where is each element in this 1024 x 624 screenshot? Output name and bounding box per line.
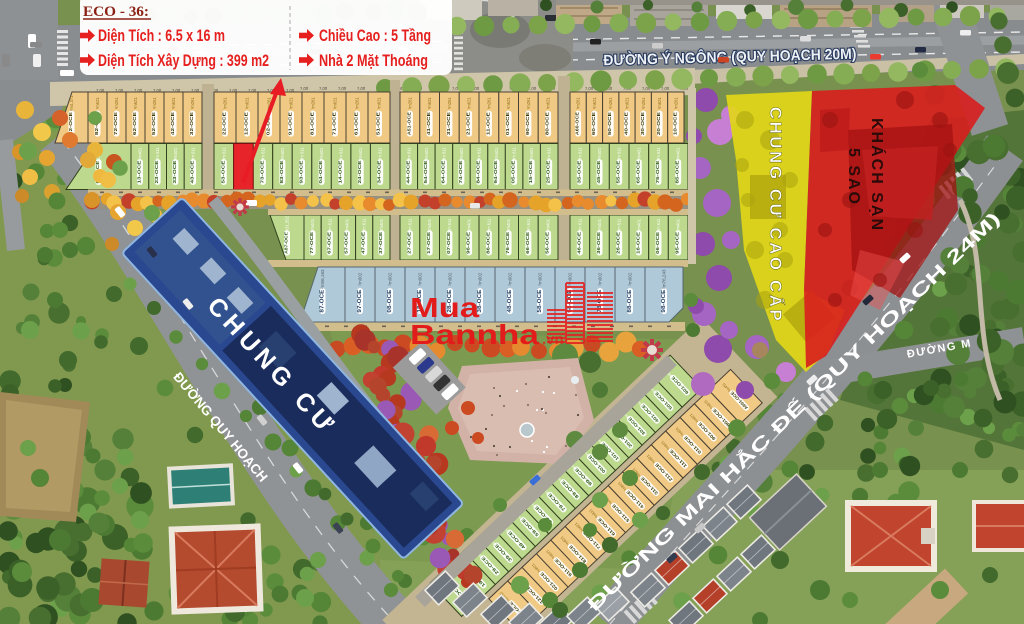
svg-text:²m621: ²m621 <box>625 97 630 110</box>
svg-text:²m621: ²m621 <box>133 97 138 110</box>
svg-text:93-OCE: 93-OCE <box>299 159 305 183</box>
svg-text:7,00: 7,00 <box>338 86 347 91</box>
svg-text:²m76,243: ²m76,243 <box>662 269 667 289</box>
svg-text:²m002: ²m002 <box>358 272 363 285</box>
svg-text:A51-OCE: A51-OCE <box>406 111 412 135</box>
svg-text:²m002: ²m002 <box>478 272 483 285</box>
svg-text:Nhà 2 Mặt Thoáng: Nhà 2 Mặt Thoáng <box>319 52 428 70</box>
svg-text:²m261: ²m261 <box>447 97 452 110</box>
svg-text:62-OCE: 62-OCE <box>132 111 138 135</box>
svg-text:53-OCE: 53-OCE <box>220 159 226 183</box>
svg-text:²m002: ²m002 <box>538 272 543 285</box>
svg-text:33-OCE: 33-OCE <box>172 159 178 183</box>
svg-text:²m 611: ²m 611 <box>617 218 622 231</box>
svg-text:01-OCE: 01-OCE <box>505 111 511 135</box>
svg-text:17-OCE: 17-OCE <box>426 231 432 254</box>
svg-text:67-OCE: 67-OCE <box>326 231 332 254</box>
svg-text:²m401: ²m401 <box>506 218 511 231</box>
svg-text:²m 611: ²m 611 <box>526 218 531 231</box>
svg-text:²m002: ²m002 <box>628 272 633 285</box>
svg-text:²m 611: ²m 611 <box>191 147 196 160</box>
svg-text:91-OCE: 91-OCE <box>288 111 294 135</box>
svg-text:35-OCE: 35-OCE <box>576 159 582 183</box>
svg-text:12-OCE: 12-OCE <box>244 111 250 135</box>
svg-text:95-OCE: 95-OCE <box>675 231 681 254</box>
svg-text:²m261: ²m261 <box>355 97 360 110</box>
svg-text:²m261: ²m261 <box>223 97 228 110</box>
svg-text:²m401: ²m401 <box>636 218 641 231</box>
svg-text:55-OCE: 55-OCE <box>616 159 622 183</box>
svg-text:5 SAO: 5 SAO <box>845 148 862 206</box>
svg-text:²m261: ²m261 <box>486 97 491 110</box>
svg-text:²m621: ²m621 <box>592 97 597 110</box>
svg-text:²m 611: ²m 611 <box>260 147 265 160</box>
svg-text:²m401: ²m401 <box>636 147 641 160</box>
svg-text:04-OCE: 04-OCE <box>318 159 324 183</box>
svg-text:44-OCE: 44-OCE <box>405 159 411 183</box>
svg-text:²m401: ²m401 <box>173 147 178 160</box>
svg-text:²m 611: ²m 611 <box>221 147 226 160</box>
svg-text:²m002: ²m002 <box>448 272 453 285</box>
svg-text:²m621: ²m621 <box>171 97 176 110</box>
svg-text:Diện Tích Xây Dựng : 399 m2: Diện Tích Xây Dựng : 399 m2 <box>98 52 269 70</box>
svg-text:²m621: ²m621 <box>377 97 382 110</box>
svg-text:90-OCE: 90-OCE <box>525 111 531 135</box>
svg-text:²m401: ²m401 <box>310 218 315 231</box>
svg-text:48-OCE: 48-OCE <box>507 289 513 313</box>
svg-text:²m56,163: ²m56,163 <box>320 269 325 289</box>
svg-text:²m401: ²m401 <box>424 147 429 160</box>
svg-text:58-OCE: 58-OCE <box>537 289 543 313</box>
svg-text:40-OCE: 40-OCE <box>624 111 630 135</box>
svg-text:66-OCE: 66-OCE <box>525 231 531 254</box>
svg-text:42-OCE: 42-OCE <box>170 111 176 135</box>
svg-text:45-OCE: 45-OCE <box>596 159 602 183</box>
svg-text:61-OCE: 61-OCE <box>354 111 360 135</box>
svg-text:²m 611: ²m 611 <box>406 147 411 160</box>
svg-text:Bannha: Bannha <box>410 319 540 350</box>
svg-text:16-OCE: 16-OCE <box>635 231 641 254</box>
svg-text:23-OCE: 23-OCE <box>154 159 160 183</box>
svg-text:34-OCE: 34-OCE <box>377 159 383 183</box>
svg-text:²m401: ²m401 <box>467 218 472 231</box>
svg-text:27-OCE: 27-OCE <box>406 231 412 254</box>
svg-text:08-OCE: 08-OCE <box>387 289 393 313</box>
svg-text:07-OCE: 07-OCE <box>446 231 452 254</box>
svg-text:15-OCE: 15-OCE <box>528 159 534 183</box>
svg-text:74-OCE: 74-OCE <box>458 159 464 183</box>
svg-text:52-OCE: 52-OCE <box>151 111 157 135</box>
svg-text:7,00: 7,00 <box>661 86 670 91</box>
svg-text:²m 611: ²m 611 <box>656 218 661 231</box>
svg-text:81-OCE: 81-OCE <box>310 111 316 135</box>
svg-text:65-OCE: 65-OCE <box>635 159 641 183</box>
svg-text:26-OCE: 26-OCE <box>616 231 622 254</box>
svg-text:²m 611: ²m 611 <box>617 147 622 160</box>
svg-text:57-OCE: 57-OCE <box>344 231 350 254</box>
svg-text:²m401: ²m401 <box>358 147 363 160</box>
svg-text:7,00: 7,00 <box>319 86 328 91</box>
svg-text:²m 611: ²m 611 <box>378 147 383 160</box>
svg-text:10-OCE: 10-OCE <box>672 111 678 135</box>
svg-text:60-OCE: 60-OCE <box>591 111 597 135</box>
svg-text:²m 611: ²m 611 <box>441 147 446 160</box>
svg-text:²m401: ²m401 <box>676 147 681 160</box>
svg-text:²m261: ²m261 <box>114 97 119 110</box>
svg-text:7,00: 7,00 <box>357 86 366 91</box>
svg-text:72-OCE: 72-OCE <box>113 111 119 135</box>
svg-text:94-OCE: 94-OCE <box>493 159 499 183</box>
svg-text:98-OCE: 98-OCE <box>661 289 667 313</box>
svg-text:²m261: ²m261 <box>152 97 157 110</box>
svg-text:²m 611: ²m 611 <box>577 147 582 160</box>
svg-text:A60-OCE: A60-OCE <box>575 111 581 135</box>
svg-text:²m621: ²m621 <box>427 97 432 110</box>
svg-text:25-OCE: 25-OCE <box>546 159 552 183</box>
svg-text:²m002: ²m002 <box>388 272 393 285</box>
svg-text:²m401: ²m401 <box>319 147 324 160</box>
svg-text:Diện Tích : 6.5 x 16 m: Diện Tích : 6.5 x 16 m <box>98 27 225 45</box>
svg-text:75-OCE: 75-OCE <box>655 159 661 183</box>
svg-text:68-OCE: 68-OCE <box>567 289 573 313</box>
svg-text:21-OCE: 21-OCE <box>466 111 472 135</box>
svg-text:²m31,552: ²m31,552 <box>285 215 290 233</box>
svg-text:22-OCE: 22-OCE <box>222 111 228 135</box>
svg-text:71-OCE: 71-OCE <box>332 111 338 135</box>
svg-text:73-OCE: 73-OCE <box>259 159 265 183</box>
svg-text:46-OCE: 46-OCE <box>576 231 582 254</box>
svg-text:²m002: ²m002 <box>598 272 603 285</box>
svg-text:54-OCE: 54-OCE <box>423 159 429 183</box>
svg-text:88-OCE: 88-OCE <box>627 289 633 313</box>
svg-text:²m 611: ²m 611 <box>477 147 482 160</box>
svg-text:²m621: ²m621 <box>289 97 294 110</box>
svg-text:²m401: ²m401 <box>597 147 602 160</box>
svg-text:31-OCE: 31-OCE <box>446 111 452 135</box>
svg-text:²m401: ²m401 <box>529 147 534 160</box>
svg-text:²m621: ²m621 <box>657 97 662 110</box>
svg-text:11-OCE: 11-OCE <box>485 111 491 135</box>
svg-text:²m261: ²m261 <box>641 97 646 110</box>
svg-text:²m 611: ²m 611 <box>547 147 552 160</box>
svg-text:CHUNG CƯ CAO CẤP: CHUNG CƯ CAO CẤP <box>766 107 785 324</box>
svg-text:²m401: ²m401 <box>546 218 551 231</box>
svg-text:13-OCE: 13-OCE <box>136 159 142 183</box>
svg-text:ECO - 36:: ECO - 36: <box>83 4 149 20</box>
svg-text:²m621: ²m621 <box>506 97 511 110</box>
svg-text:²m621: ²m621 <box>95 97 100 110</box>
svg-text:²m401: ²m401 <box>494 147 499 160</box>
svg-text:²m 611: ²m 611 <box>327 218 332 231</box>
svg-text:.vn: .vn <box>542 331 564 348</box>
svg-text:²m401: ²m401 <box>427 218 432 231</box>
svg-text:32-OCE: 32-OCE <box>189 111 195 135</box>
svg-text:²m 611: ²m 611 <box>447 218 452 231</box>
svg-text:KHÁCH SẠN: KHÁCH SẠN <box>868 118 887 232</box>
svg-text:47-OCE: 47-OCE <box>361 231 367 254</box>
svg-text:92-OCE: 92-OCE <box>68 111 74 135</box>
svg-text:85-OCE: 85-OCE <box>675 159 681 183</box>
svg-text:24-OCE: 24-OCE <box>357 159 363 183</box>
svg-text:²m002: ²m002 <box>508 272 513 285</box>
svg-text:²m261: ²m261 <box>576 97 581 110</box>
svg-text:²m621: ²m621 <box>245 97 250 110</box>
svg-text:43-OCE: 43-OCE <box>190 159 196 183</box>
svg-text:²m401: ²m401 <box>459 147 464 160</box>
svg-text:97-OCE: 97-OCE <box>357 289 363 313</box>
svg-text:²m261: ²m261 <box>407 97 412 110</box>
svg-text:06-OCE: 06-OCE <box>655 231 661 254</box>
svg-text:²m401: ²m401 <box>345 218 350 231</box>
svg-text:30-OCE: 30-OCE <box>640 111 646 135</box>
svg-text:36-OCE: 36-OCE <box>596 231 602 254</box>
svg-text:²m 611: ²m 611 <box>155 147 160 160</box>
svg-text:²m261: ²m261 <box>608 97 613 110</box>
svg-text:²m261: ²m261 <box>526 97 531 110</box>
svg-text:²m621: ²m621 <box>467 97 472 110</box>
svg-text:²m401: ²m401 <box>137 147 142 160</box>
svg-text:87-OCE: 87-OCE <box>320 289 326 313</box>
svg-text:²m401: ²m401 <box>280 147 285 160</box>
svg-text:²m261: ²m261 <box>673 97 678 110</box>
svg-text:80-OCE: 80-OCE <box>545 111 551 135</box>
svg-text:50-OCE: 50-OCE <box>607 111 613 135</box>
svg-text:7,00: 7,00 <box>300 86 309 91</box>
svg-text:Chiều Cao : 5 Tầng: Chiều Cao : 5 Tầng <box>319 27 431 45</box>
svg-text:²m 611: ²m 611 <box>486 218 491 231</box>
svg-text:84-OCE: 84-OCE <box>476 159 482 183</box>
svg-text:²m401: ²m401 <box>676 218 681 231</box>
svg-text:²m 611: ²m 611 <box>656 147 661 160</box>
svg-text:²m 611: ²m 611 <box>362 218 367 231</box>
svg-text:²m 611: ²m 611 <box>577 218 582 231</box>
svg-text:51-OCE: 51-OCE <box>376 111 382 135</box>
svg-text:76-OCE: 76-OCE <box>505 231 511 254</box>
svg-text:²m261: ²m261 <box>311 97 316 110</box>
svg-text:37-OCE: 37-OCE <box>378 231 384 254</box>
svg-text:83-OCE: 83-OCE <box>279 159 285 183</box>
svg-text:²m401: ²m401 <box>379 218 384 231</box>
svg-text:77-OCE: 77-OCE <box>309 231 315 254</box>
svg-text:²m 611: ²m 611 <box>300 147 305 160</box>
svg-text:20-OCE: 20-OCE <box>656 111 662 135</box>
svg-text:²m261: ²m261 <box>190 97 195 110</box>
svg-text:²m4,371: ²m4,371 <box>69 95 74 111</box>
svg-text:²m 611: ²m 611 <box>407 218 412 231</box>
svg-text:²m 611: ²m 611 <box>339 147 344 160</box>
svg-text:64-OCE: 64-OCE <box>440 159 446 183</box>
svg-text:²m 611: ²m 611 <box>512 147 517 160</box>
svg-text:56-OCE: 56-OCE <box>545 231 551 254</box>
svg-text:²m621: ²m621 <box>546 97 551 110</box>
svg-text:05-OCE: 05-OCE <box>511 159 517 183</box>
svg-text:14-OCE: 14-OCE <box>338 159 344 183</box>
svg-text:41-OCE: 41-OCE <box>426 111 432 135</box>
svg-text:²m401: ²m401 <box>597 218 602 231</box>
svg-text:²m621: ²m621 <box>333 97 338 110</box>
svg-text:86-OCE: 86-OCE <box>485 231 491 254</box>
svg-text:²m002: ²m002 <box>418 272 423 285</box>
svg-text:96-OCE: 96-OCE <box>466 231 472 254</box>
